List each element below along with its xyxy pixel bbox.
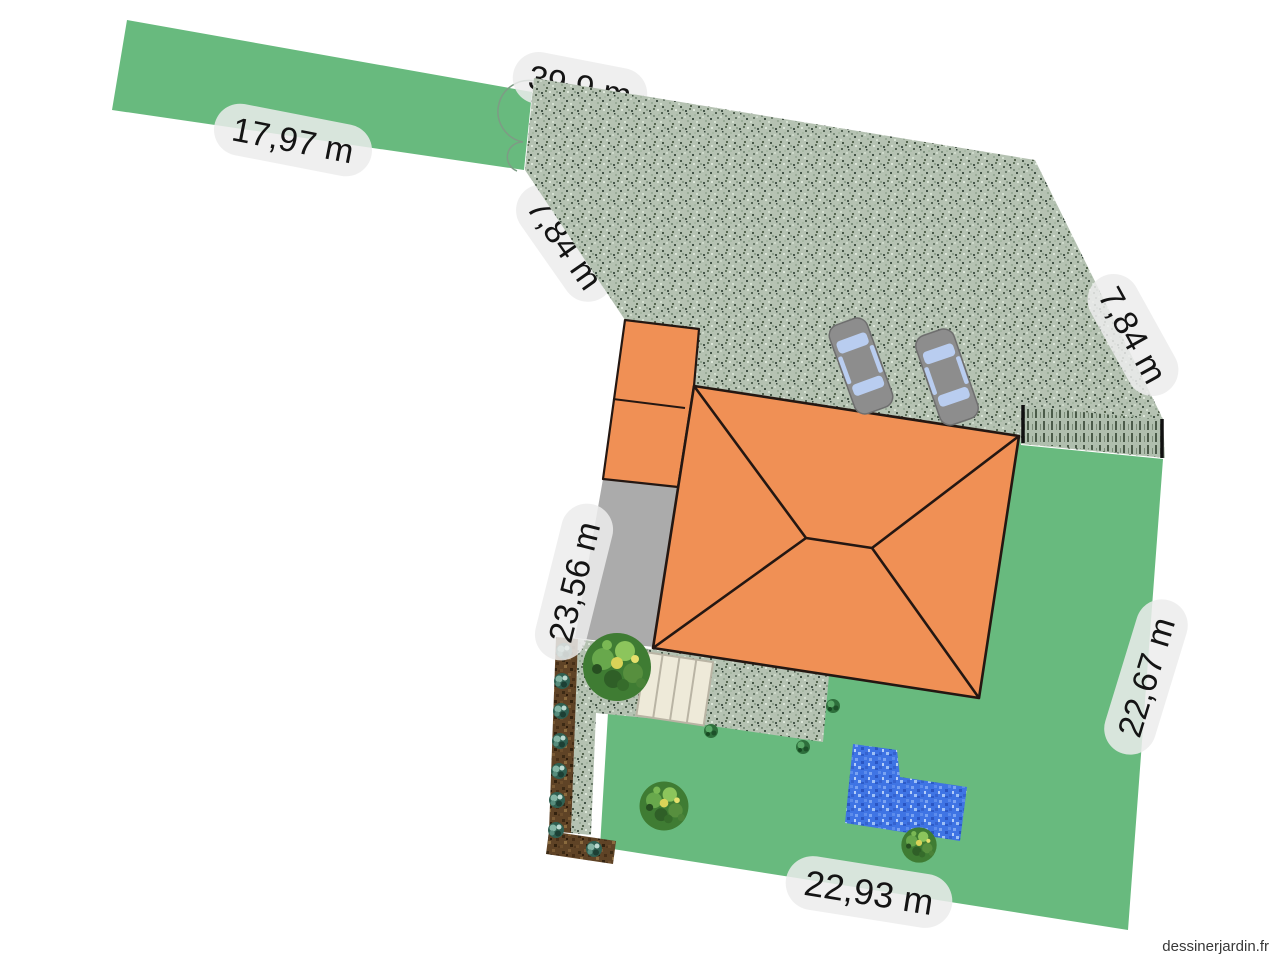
shrub-icon[interactable] bbox=[901, 827, 936, 862]
garden-plan-page: 39,9 m 7,84 m bbox=[0, 0, 1280, 960]
flowerbed-plant-icon[interactable] bbox=[554, 673, 570, 689]
flowerbed-plant-icon[interactable] bbox=[549, 792, 565, 808]
flowerbed-plant-icon[interactable] bbox=[586, 841, 602, 857]
flowerbed-plant-icon[interactable] bbox=[548, 822, 564, 838]
watermark: dessinerjardin.fr bbox=[1162, 938, 1269, 955]
plant-tuft-icon[interactable] bbox=[826, 699, 840, 713]
plant-tuft-icon[interactable] bbox=[796, 740, 810, 754]
flowerbed-plant-icon[interactable] bbox=[552, 733, 568, 749]
shrub-icon[interactable] bbox=[640, 782, 689, 831]
plant-tuft-icon[interactable] bbox=[704, 724, 718, 738]
garden-plan-canvas[interactable]: 39,9 m 7,84 m bbox=[0, 0, 1280, 960]
shrub-icon[interactable] bbox=[583, 633, 651, 701]
flowerbed-plant-icon[interactable] bbox=[551, 763, 567, 779]
flowerbed-plant-icon[interactable] bbox=[553, 703, 569, 719]
